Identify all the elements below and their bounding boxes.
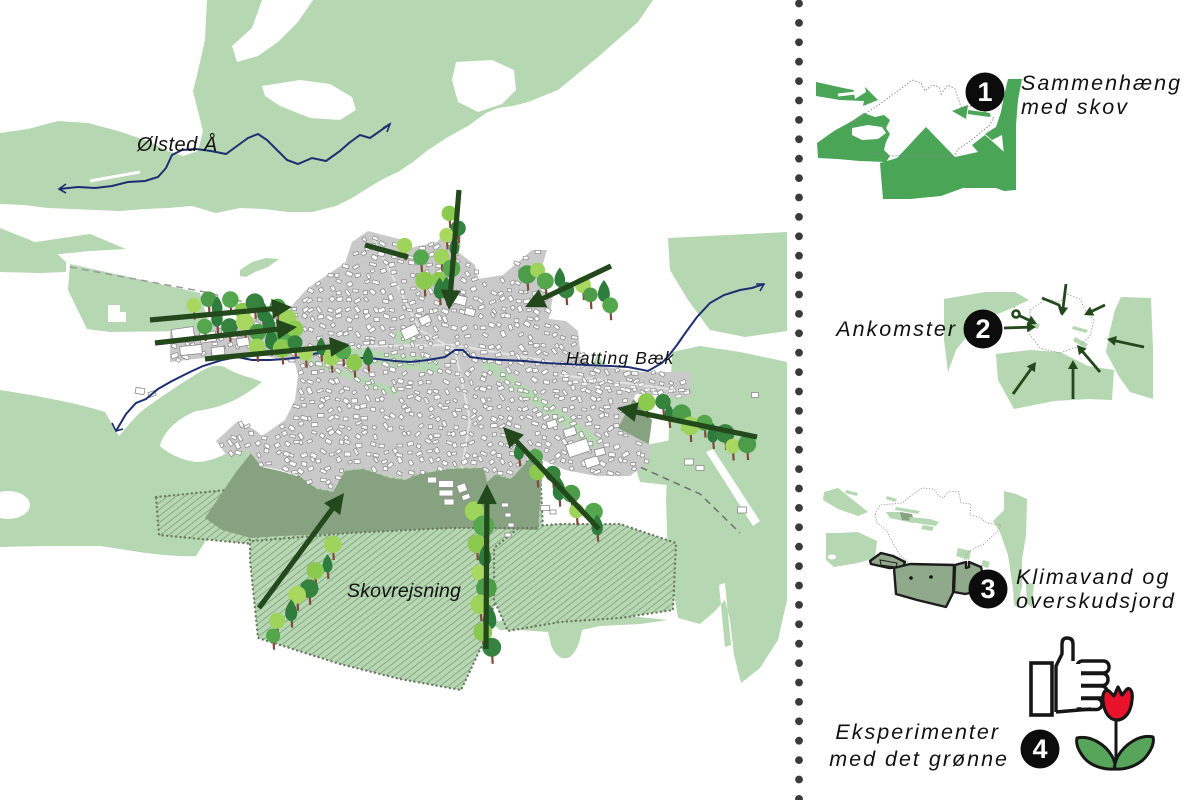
- svg-text:Hatting Bæk: Hatting Bæk: [566, 348, 675, 368]
- svg-text:1: 1: [977, 77, 992, 107]
- svg-text:3: 3: [980, 574, 995, 604]
- svg-text:med skov: med skov: [1021, 95, 1129, 119]
- svg-text:Ankomster: Ankomster: [834, 317, 957, 341]
- svg-text:Skovrejsning: Skovrejsning: [347, 580, 461, 602]
- svg-text:med det grønne: med det grønne: [829, 747, 1009, 771]
- svg-text:Sammenhæng: Sammenhæng: [1021, 71, 1182, 95]
- svg-text:Klimavand og: Klimavand og: [1016, 565, 1170, 589]
- svg-text:4: 4: [1032, 734, 1047, 764]
- svg-text:Ølsted Å: Ølsted Å: [136, 133, 218, 156]
- svg-text:overskudsjord: overskudsjord: [1016, 589, 1176, 613]
- svg-text:Eksperimenter: Eksperimenter: [835, 720, 1000, 744]
- svg-text:2: 2: [975, 314, 990, 344]
